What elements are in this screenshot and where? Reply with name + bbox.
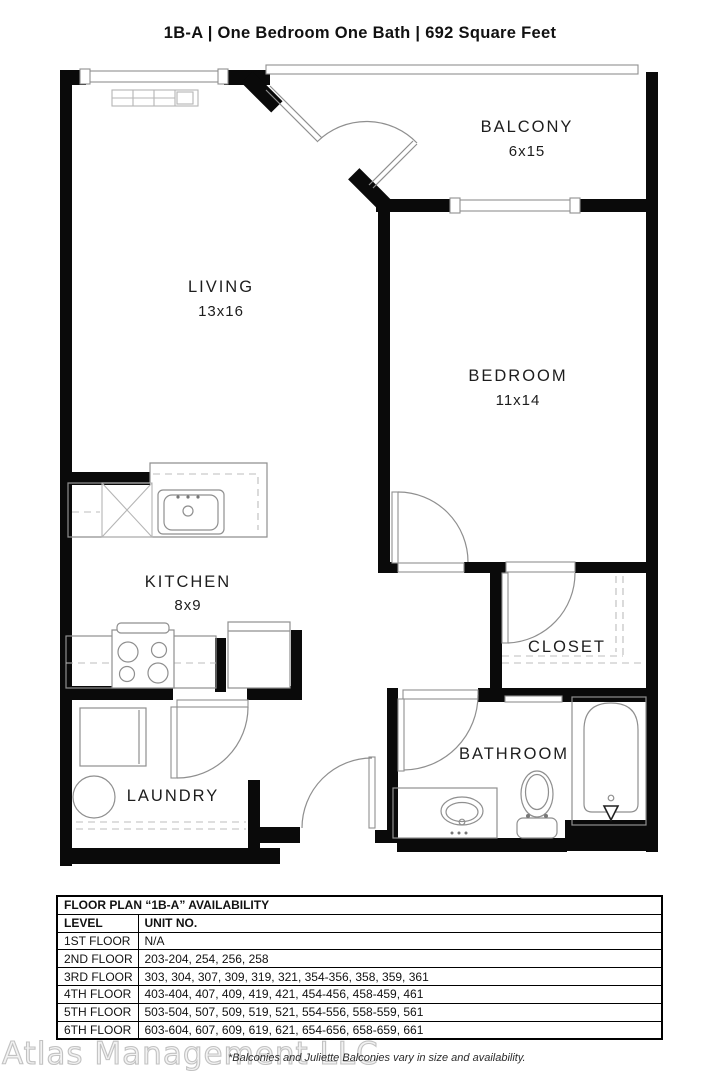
room-label-balcony: BALCONY — [481, 118, 574, 136]
bedroom-window — [450, 198, 580, 213]
table-title: FLOOR PLAN “1B-A” AVAILABILITY — [57, 896, 662, 914]
units-cell: 303, 304, 307, 309, 319, 321, 354-356, 3… — [138, 968, 662, 986]
level-cell: 2ND FLOOR — [57, 950, 138, 968]
table-header-row: LEVEL UNIT NO. — [57, 914, 662, 932]
room-dims-bedroom: 11x14 — [496, 392, 541, 409]
water-heater — [73, 776, 115, 818]
room-label-closet: CLOSET — [528, 638, 606, 656]
table-row: 5TH FLOOR 503-504, 507, 509, 519, 521, 5… — [57, 1003, 662, 1021]
living-window — [80, 69, 228, 84]
table-row: 4TH FLOOR 403-404, 407, 409, 419, 421, 4… — [57, 985, 662, 1003]
units-cell: 403-404, 407, 409, 419, 421, 454-456, 45… — [138, 985, 662, 1003]
col-header-unit-no: UNIT NO. — [138, 914, 662, 932]
room-label-kitchen: KITCHEN — [145, 573, 231, 591]
closet-door — [502, 562, 575, 643]
availability-table: FLOOR PLAN “1B-A” AVAILABILITY LEVEL UNI… — [56, 895, 663, 1040]
room-label-bathroom: BATHROOM — [459, 745, 569, 763]
bathroom-notch — [505, 696, 562, 702]
toilet — [517, 771, 557, 838]
room-dims-living: 13x16 — [198, 303, 244, 320]
baseboard-heater — [112, 90, 198, 106]
units-cell: 503-504, 507, 509, 519, 521, 554-556, 55… — [138, 1003, 662, 1021]
units-cell: 203-204, 254, 256, 258 — [138, 950, 662, 968]
col-header-level: LEVEL — [57, 914, 138, 932]
level-cell: 5TH FLOOR — [57, 1003, 138, 1021]
room-dims-balcony: 6x15 — [509, 143, 546, 160]
room-label-living: LIVING — [188, 278, 254, 296]
table-row: 3RD FLOOR 303, 304, 307, 309, 319, 321, … — [57, 968, 662, 986]
entry-door — [302, 757, 375, 828]
balcony-door — [266, 86, 417, 188]
table-row: 1ST FLOOR N/A — [57, 932, 662, 950]
laundry-shelf — [76, 822, 246, 829]
balcony-railing — [266, 65, 638, 74]
level-cell: 4TH FLOOR — [57, 985, 138, 1003]
bedroom-door — [392, 492, 468, 572]
washer — [80, 708, 146, 766]
laundry-door — [171, 700, 248, 778]
kitchen-sink — [158, 490, 224, 534]
balcony-disclaimer: *Balconies and Juliette Balconies vary i… — [228, 1052, 526, 1064]
room-label-bedroom: BEDROOM — [468, 367, 567, 385]
vanity-sink — [393, 788, 497, 838]
room-dims-kitchen: 8x9 — [174, 597, 201, 614]
flyer-page: 1B-A | One Bedroom One Bath | 692 Square… — [0, 0, 720, 1080]
table-title-row: FLOOR PLAN “1B-A” AVAILABILITY — [57, 896, 662, 914]
level-cell: 1ST FLOOR — [57, 932, 138, 950]
dishwasher — [102, 483, 152, 537]
units-cell: N/A — [138, 932, 662, 950]
bathtub — [572, 697, 646, 825]
stove — [112, 623, 174, 688]
room-label-laundry: LAUNDRY — [127, 787, 220, 805]
refrigerator — [228, 622, 290, 688]
table-row: 2ND FLOOR 203-204, 254, 256, 258 — [57, 950, 662, 968]
level-cell: 3RD FLOOR — [57, 968, 138, 986]
